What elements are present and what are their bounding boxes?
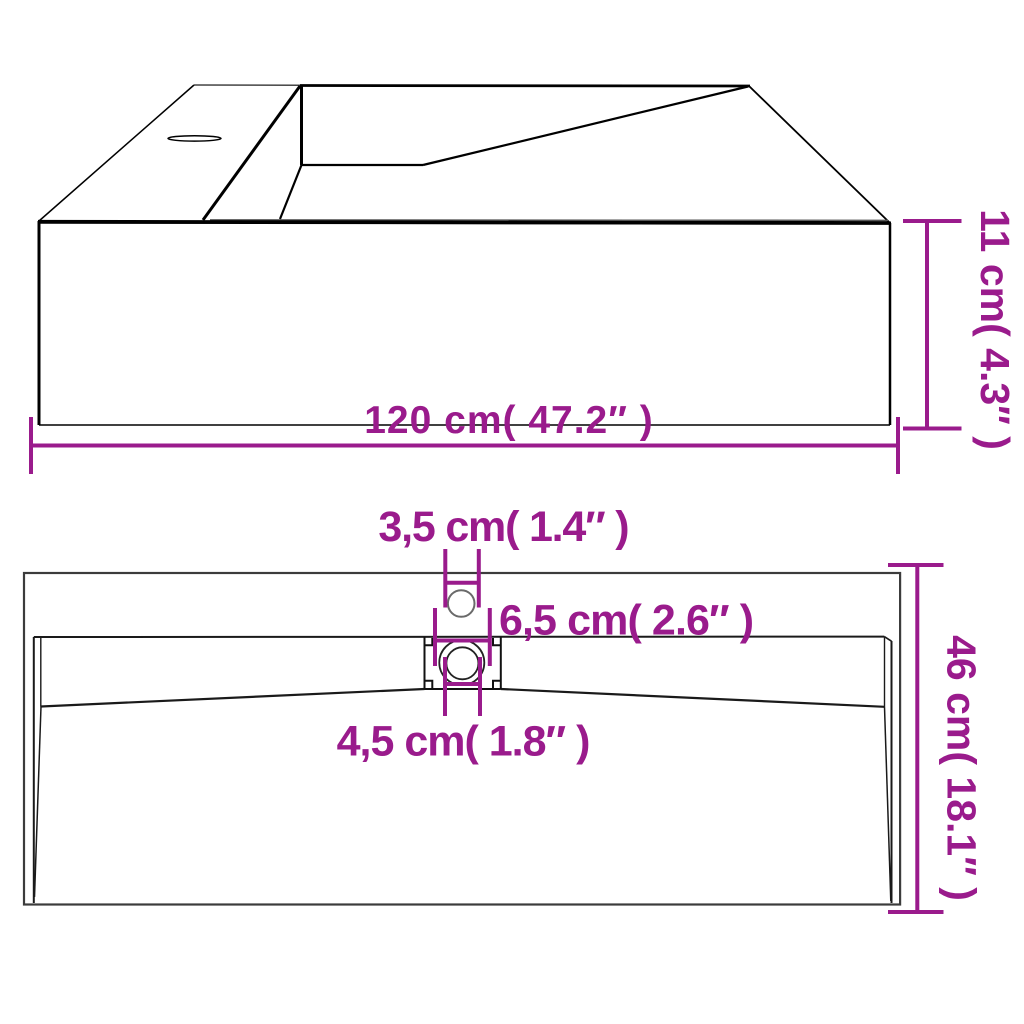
svg-text:6,5 cm( 2.6″ ): 6,5 cm( 2.6″ ): [499, 597, 753, 645]
svg-text:3,5 cm( 1.4″ ): 3,5 cm( 1.4″ ): [378, 503, 628, 551]
svg-text:120 cm( 47.2″ ): 120 cm( 47.2″ ): [364, 399, 654, 442]
svg-text:11 cm( 4.3″ ): 11 cm( 4.3″ ): [972, 209, 1018, 450]
svg-text:46 cm( 18.1″ ): 46 cm( 18.1″ ): [939, 635, 985, 901]
svg-text:4,5 cm( 1.8″ ): 4,5 cm( 1.8″ ): [337, 718, 590, 766]
